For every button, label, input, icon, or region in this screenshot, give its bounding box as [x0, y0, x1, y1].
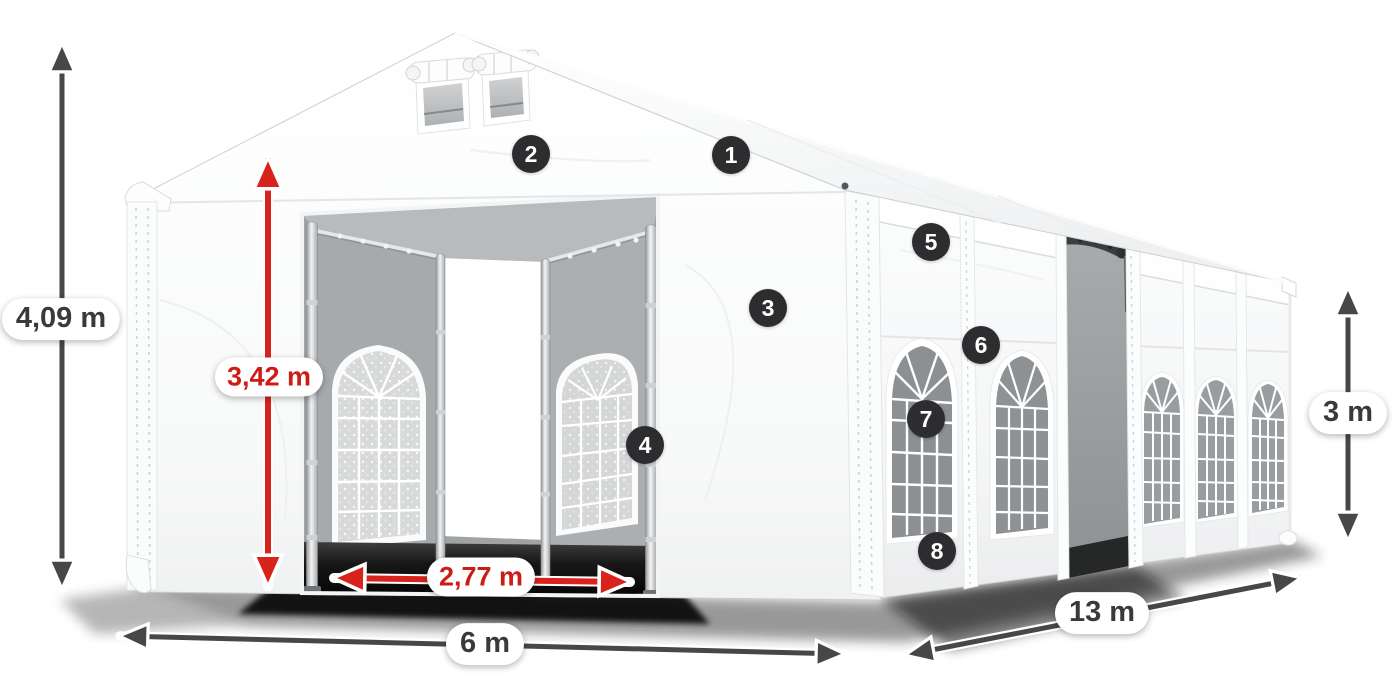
side-window-5: [1248, 380, 1288, 517]
dimension-label-entrance-width: 2,77 m: [427, 557, 535, 596]
side-window-4: [1194, 376, 1238, 523]
hotspot-marker-5[interactable]: 5: [912, 223, 950, 261]
eave-corner-fitting: [842, 183, 849, 190]
front-right-corner-strap: [845, 191, 884, 597]
side-window-2: [990, 350, 1054, 540]
hotspot-marker-7[interactable]: 7: [907, 400, 945, 438]
dimension-label-front-width: 6 m: [446, 623, 524, 665]
dimension-label-side-length: 13 m: [1055, 592, 1149, 634]
dimension-label-entrance-height: 3,42 m: [215, 357, 323, 396]
tent-illustration: [0, 0, 1400, 700]
entrance-right-door-panel: [546, 231, 653, 592]
side-wall: [845, 190, 1297, 598]
side-door-opening: [1064, 236, 1129, 578]
hotspot-marker-1[interactable]: 1: [712, 136, 750, 174]
tent-dimension-diagram: 4,09 m 3,42 m 2,77 m 6 m 13 m 3 m 1 2 3 …: [0, 0, 1400, 700]
entrance-left-door-panel: [317, 231, 441, 587]
hotspot-marker-2[interactable]: 2: [512, 135, 550, 173]
skirt-fold: [1279, 531, 1297, 545]
dimension-label-side-height: 3 m: [1309, 392, 1387, 434]
side-window-1: [886, 338, 958, 544]
through-opening: [441, 258, 546, 540]
hotspot-marker-6[interactable]: 6: [962, 326, 1000, 364]
hotspot-marker-3[interactable]: 3: [749, 289, 787, 327]
side-window-3: [1140, 372, 1184, 528]
dimension-label-total-height: 4,09 m: [2, 298, 120, 340]
entrance-interior: [300, 193, 661, 598]
hotspot-marker-4[interactable]: 4: [626, 426, 664, 464]
front-left-corner-strap: [127, 202, 157, 590]
hotspot-marker-8[interactable]: 8: [918, 532, 956, 570]
